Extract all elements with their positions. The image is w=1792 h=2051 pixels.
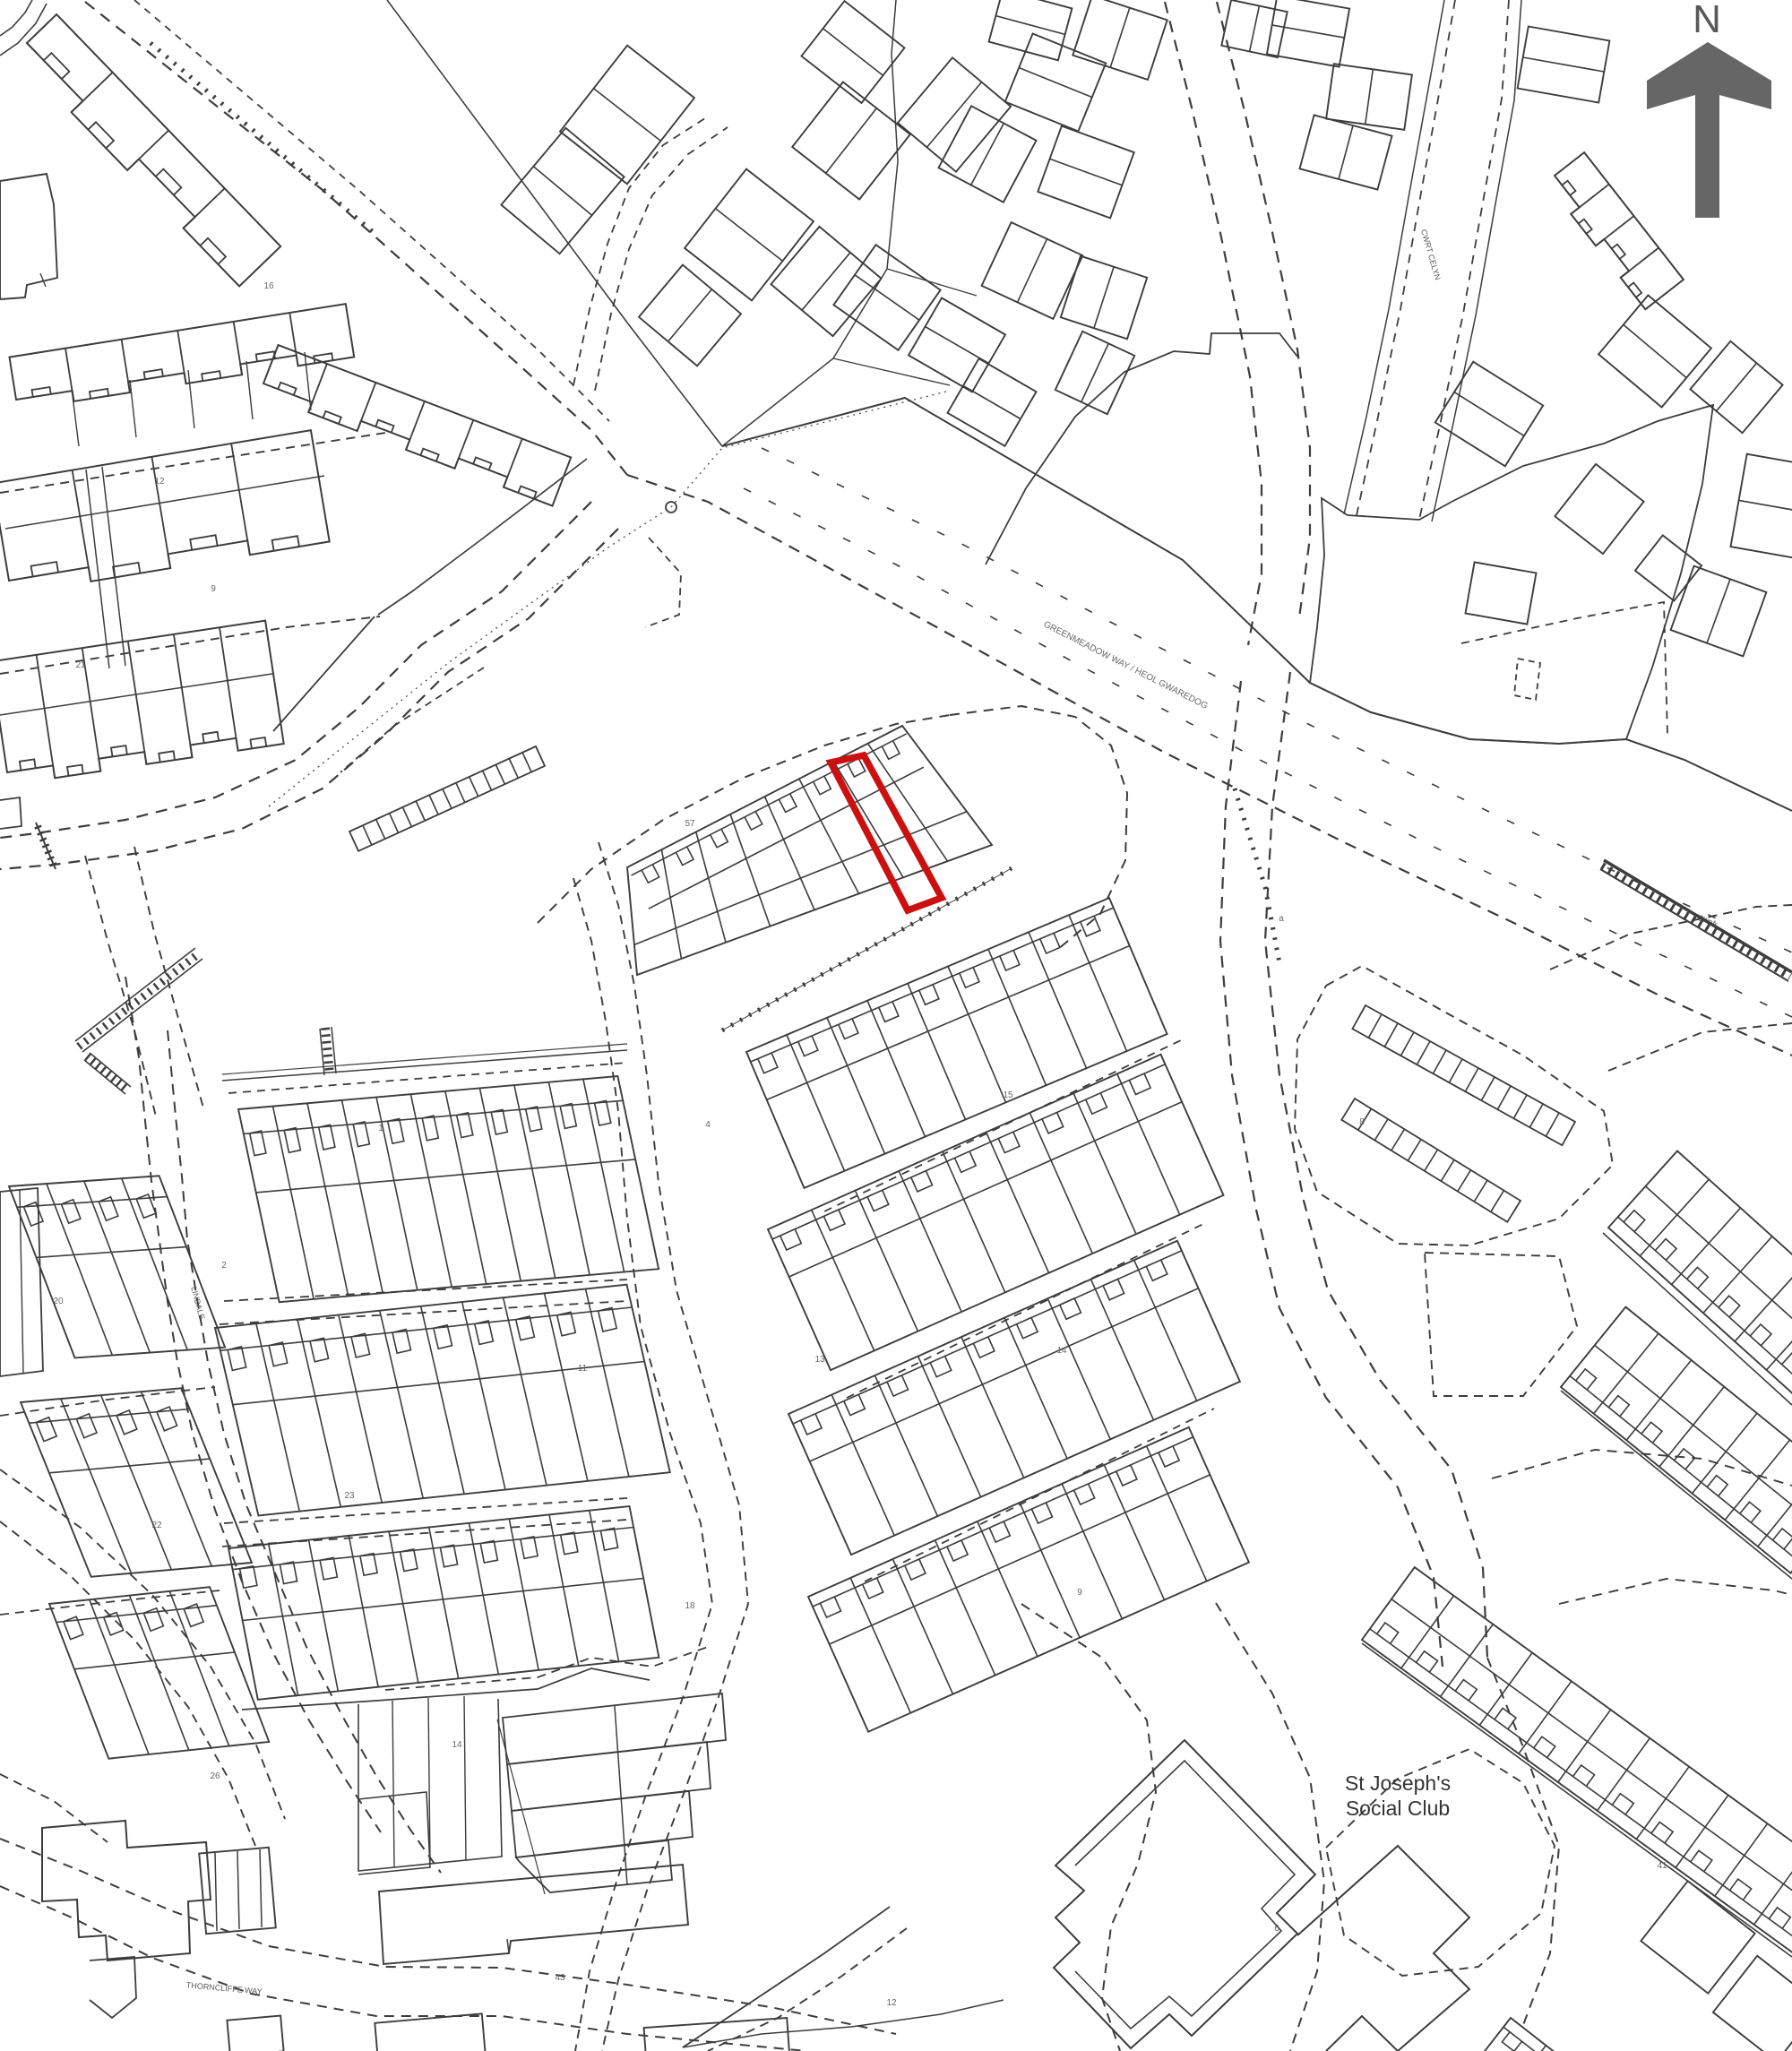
svg-text:43: 43 bbox=[555, 1973, 565, 1983]
svg-text:2: 2 bbox=[221, 1261, 227, 1271]
svg-text:12: 12 bbox=[154, 477, 165, 487]
svg-text:15: 15 bbox=[1003, 1090, 1013, 1100]
svg-text:21: 21 bbox=[75, 660, 86, 670]
svg-text:Social Club: Social Club bbox=[1346, 1797, 1450, 1820]
svg-text:41: 41 bbox=[1657, 1861, 1667, 1871]
svg-text:11: 11 bbox=[578, 1364, 588, 1374]
svg-text:a: a bbox=[1279, 914, 1284, 924]
svg-text:12: 12 bbox=[886, 1998, 897, 2008]
svg-text:9: 9 bbox=[211, 584, 216, 594]
svg-text:16: 16 bbox=[263, 281, 274, 291]
svg-text:4: 4 bbox=[705, 1120, 711, 1130]
svg-text:9: 9 bbox=[1077, 1588, 1082, 1598]
svg-text:1: 1 bbox=[378, 1124, 383, 1133]
svg-text:6: 6 bbox=[1274, 1924, 1279, 1934]
svg-text:26: 26 bbox=[210, 1771, 220, 1781]
svg-text:N: N bbox=[1693, 0, 1721, 41]
svg-text:57: 57 bbox=[685, 819, 695, 829]
svg-text:8: 8 bbox=[1359, 1117, 1365, 1127]
svg-text:20: 20 bbox=[53, 1297, 64, 1306]
svg-text:13: 13 bbox=[814, 1355, 825, 1365]
svg-text:23: 23 bbox=[344, 1491, 355, 1501]
svg-text:14: 14 bbox=[1056, 1346, 1067, 1356]
svg-text:22: 22 bbox=[151, 1521, 162, 1530]
svg-text:14: 14 bbox=[452, 1740, 462, 1750]
svg-text:18: 18 bbox=[685, 1601, 695, 1611]
svg-text:St Joseph's: St Joseph's bbox=[1345, 1771, 1451, 1795]
